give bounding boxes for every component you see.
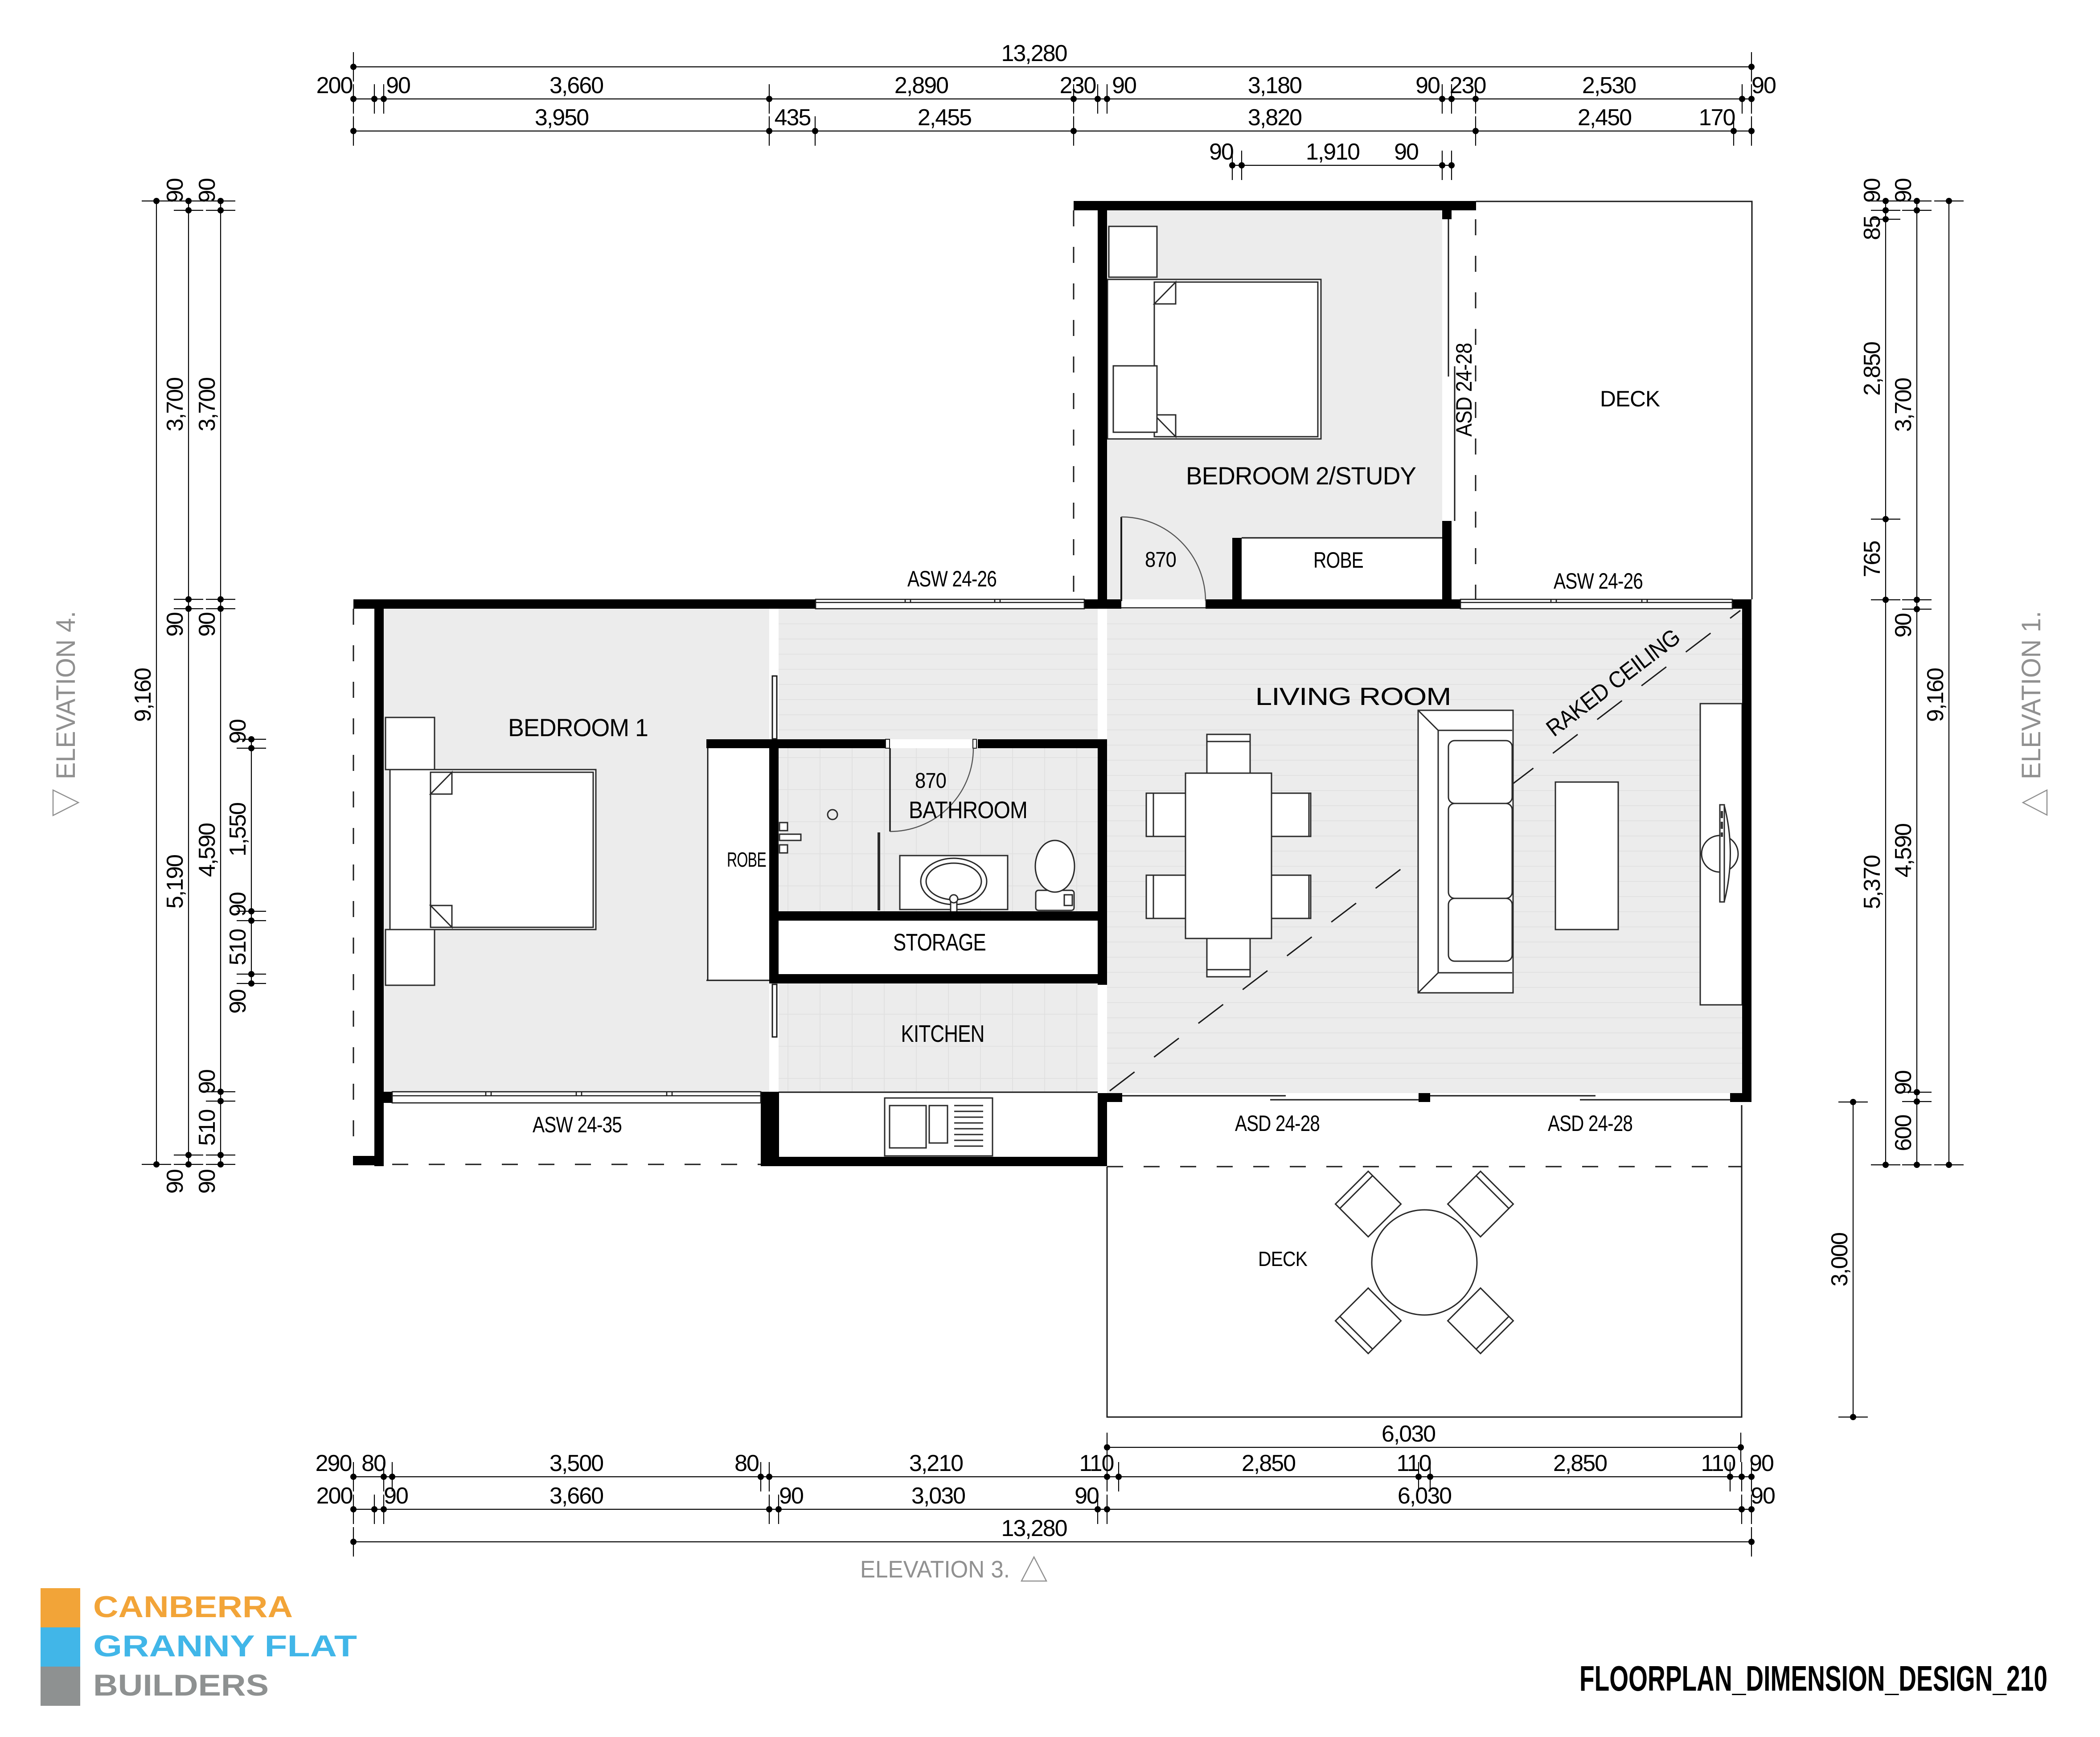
svg-text:3,700: 3,700 bbox=[162, 378, 188, 431]
svg-text:90: 90 bbox=[1859, 179, 1885, 203]
svg-text:DECK: DECK bbox=[1600, 386, 1660, 411]
svg-text:4,590: 4,590 bbox=[1891, 824, 1916, 877]
svg-text:510: 510 bbox=[225, 930, 251, 966]
svg-text:90: 90 bbox=[1891, 1071, 1916, 1095]
svg-text:2,850: 2,850 bbox=[1859, 342, 1885, 396]
svg-text:2,890: 2,890 bbox=[894, 73, 948, 98]
svg-text:870: 870 bbox=[1145, 548, 1176, 572]
svg-text:870: 870 bbox=[915, 769, 946, 793]
svg-text:4,590: 4,590 bbox=[194, 823, 220, 877]
svg-text:ASW 24-26: ASW 24-26 bbox=[1554, 569, 1643, 594]
svg-text:2,450: 2,450 bbox=[1578, 105, 1631, 131]
svg-text:9,160: 9,160 bbox=[1923, 668, 1948, 722]
svg-text:200: 200 bbox=[316, 1483, 353, 1509]
svg-text:CANBERRA: CANBERRA bbox=[93, 1590, 293, 1624]
svg-text:3,950: 3,950 bbox=[535, 105, 588, 131]
svg-text:765: 765 bbox=[1859, 541, 1885, 578]
svg-text:STORAGE: STORAGE bbox=[893, 929, 986, 956]
svg-text:ELEVATION 3.: ELEVATION 3. bbox=[860, 1556, 1010, 1583]
svg-text:ROBE: ROBE bbox=[727, 848, 766, 871]
svg-text:ASW 24-35: ASW 24-35 bbox=[533, 1112, 622, 1137]
svg-text:KITCHEN: KITCHEN bbox=[901, 1020, 984, 1047]
svg-text:3,700: 3,700 bbox=[1891, 378, 1916, 432]
svg-text:90: 90 bbox=[225, 720, 251, 744]
svg-text:9,160: 9,160 bbox=[130, 668, 156, 722]
svg-text:230: 230 bbox=[1060, 73, 1096, 98]
svg-text:110: 110 bbox=[1397, 1450, 1431, 1476]
svg-text:510: 510 bbox=[194, 1110, 220, 1146]
svg-text:GRANNY FLAT: GRANNY FLAT bbox=[93, 1629, 357, 1663]
svg-text:90: 90 bbox=[162, 613, 188, 637]
svg-text:80: 80 bbox=[734, 1450, 759, 1476]
svg-text:90: 90 bbox=[386, 73, 410, 98]
svg-text:13,280: 13,280 bbox=[1001, 41, 1066, 66]
svg-text:90: 90 bbox=[1751, 1483, 1775, 1509]
svg-text:85: 85 bbox=[1859, 216, 1885, 240]
svg-text:90: 90 bbox=[1891, 614, 1916, 638]
svg-text:90: 90 bbox=[1112, 73, 1136, 98]
svg-text:600: 600 bbox=[1891, 1115, 1916, 1151]
svg-text:2,850: 2,850 bbox=[1242, 1450, 1295, 1476]
svg-text:ASD 24-28: ASD 24-28 bbox=[1235, 1111, 1320, 1136]
svg-text:90: 90 bbox=[1749, 1450, 1773, 1476]
svg-text:90: 90 bbox=[1394, 139, 1418, 165]
svg-text:ELEVATION 4.: ELEVATION 4. bbox=[51, 611, 81, 779]
svg-text:5,190: 5,190 bbox=[162, 855, 188, 909]
svg-text:435: 435 bbox=[775, 105, 811, 131]
svg-text:3,000: 3,000 bbox=[1827, 1233, 1853, 1286]
svg-text:ASD 24-28: ASD 24-28 bbox=[1452, 343, 1477, 437]
svg-text:3,180: 3,180 bbox=[1248, 73, 1301, 98]
svg-text:13,280: 13,280 bbox=[1001, 1516, 1066, 1541]
svg-text:170: 170 bbox=[1699, 105, 1735, 131]
svg-text:3,500: 3,500 bbox=[550, 1450, 603, 1476]
svg-text:90: 90 bbox=[162, 179, 188, 203]
svg-text:BATHROOM: BATHROOM bbox=[909, 797, 1027, 823]
svg-text:1,910: 1,910 bbox=[1306, 139, 1359, 165]
svg-text:110: 110 bbox=[1701, 1450, 1735, 1476]
svg-text:110: 110 bbox=[1079, 1450, 1114, 1476]
svg-text:DECK: DECK bbox=[1258, 1247, 1308, 1270]
svg-text:90: 90 bbox=[1751, 73, 1776, 98]
svg-text:3,030: 3,030 bbox=[911, 1483, 965, 1509]
svg-text:LIVING ROOM: LIVING ROOM bbox=[1255, 682, 1451, 710]
svg-text:90: 90 bbox=[194, 1070, 220, 1094]
svg-text:3,660: 3,660 bbox=[550, 1483, 603, 1509]
svg-text:3,210: 3,210 bbox=[909, 1450, 963, 1476]
svg-text:90: 90 bbox=[194, 179, 220, 203]
svg-text:200: 200 bbox=[316, 73, 353, 98]
svg-text:5,370: 5,370 bbox=[1859, 856, 1885, 909]
svg-text:230: 230 bbox=[1450, 73, 1486, 98]
svg-text:80: 80 bbox=[361, 1450, 386, 1476]
svg-text:BEDROOM 1: BEDROOM 1 bbox=[508, 713, 648, 742]
svg-text:90: 90 bbox=[162, 1170, 188, 1194]
svg-text:90: 90 bbox=[779, 1483, 803, 1509]
svg-text:90: 90 bbox=[194, 613, 220, 637]
svg-text:2,530: 2,530 bbox=[1582, 73, 1636, 98]
svg-text:2,850: 2,850 bbox=[1553, 1450, 1607, 1476]
svg-text:ROBE: ROBE bbox=[1313, 548, 1363, 573]
svg-text:90: 90 bbox=[1891, 179, 1916, 203]
svg-text:2,455: 2,455 bbox=[918, 105, 971, 131]
svg-text:90: 90 bbox=[194, 1170, 220, 1194]
svg-text:90: 90 bbox=[225, 893, 251, 917]
svg-text:1,550: 1,550 bbox=[225, 803, 251, 856]
svg-text:FLOORPLAN_DIMENSION_DESIGN_210: FLOORPLAN_DIMENSION_DESIGN_210 bbox=[1579, 1659, 2047, 1698]
svg-text:90: 90 bbox=[1075, 1483, 1099, 1509]
svg-text:BEDROOM 2/STUDY: BEDROOM 2/STUDY bbox=[1186, 462, 1416, 490]
svg-text:90: 90 bbox=[1209, 139, 1233, 165]
svg-text:ASW 24-26: ASW 24-26 bbox=[907, 566, 997, 591]
svg-text:90: 90 bbox=[1415, 73, 1440, 98]
svg-text:ELEVATION 1.: ELEVATION 1. bbox=[2016, 611, 2046, 779]
svg-text:290: 290 bbox=[316, 1450, 352, 1476]
svg-text:6,030: 6,030 bbox=[1382, 1421, 1435, 1447]
svg-text:90: 90 bbox=[384, 1483, 408, 1509]
svg-text:3,660: 3,660 bbox=[550, 73, 603, 98]
svg-text:6,030: 6,030 bbox=[1398, 1483, 1451, 1509]
svg-text:3,820: 3,820 bbox=[1248, 105, 1301, 131]
svg-text:3,700: 3,700 bbox=[194, 378, 220, 431]
svg-text:90: 90 bbox=[225, 990, 251, 1014]
svg-text:BUILDERS: BUILDERS bbox=[93, 1668, 269, 1702]
svg-text:ASD 24-28: ASD 24-28 bbox=[1548, 1111, 1632, 1136]
